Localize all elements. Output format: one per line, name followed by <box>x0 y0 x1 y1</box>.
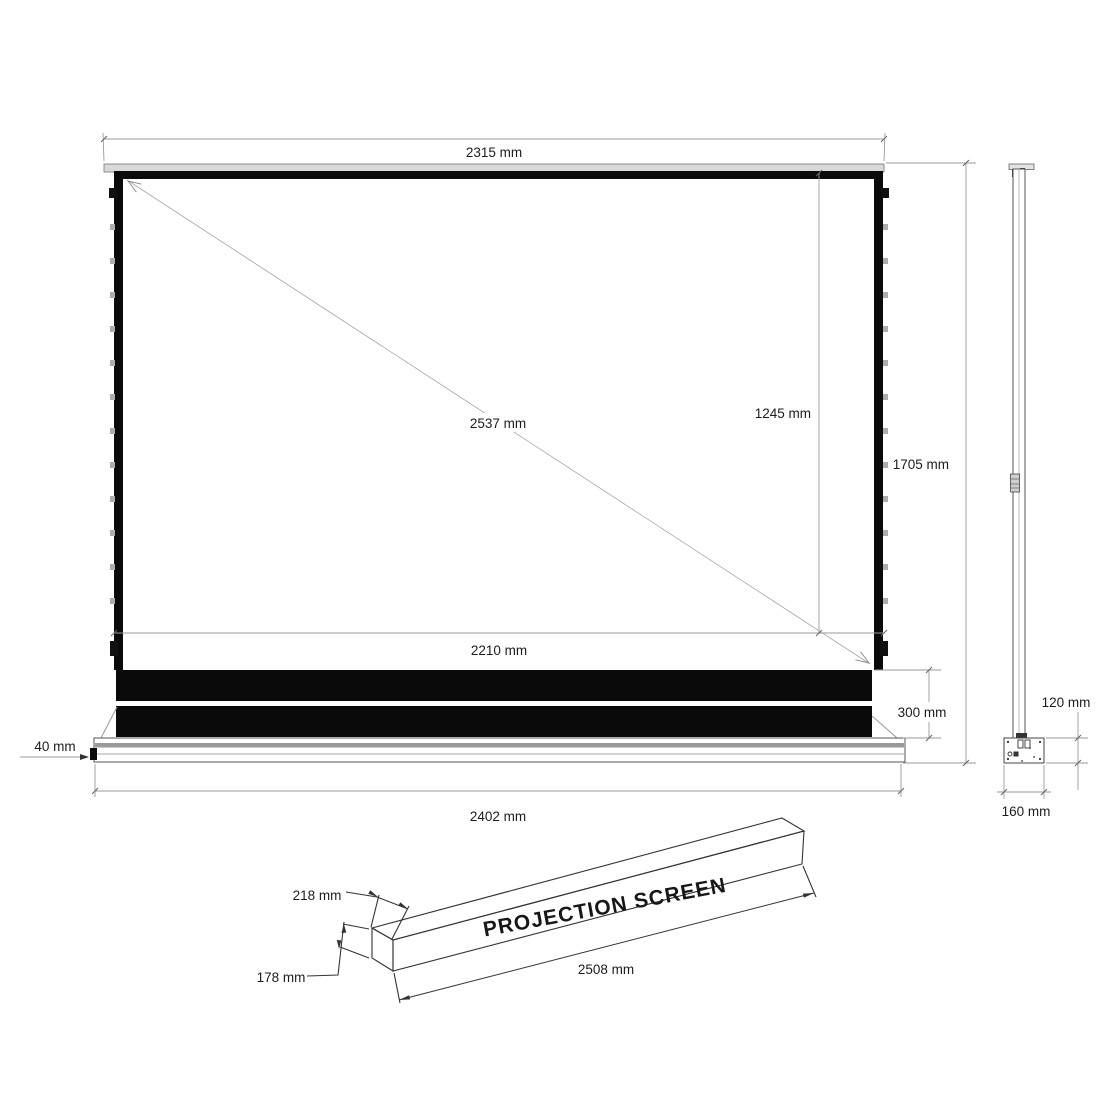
side-pole-foot-joint <box>1016 733 1027 738</box>
case-height-leader <box>307 922 369 976</box>
dim-label-top-width: 2315 mm <box>466 145 522 160</box>
dim-label-case-length: 2508 mm <box>578 962 634 977</box>
case-length-arrow-right <box>803 893 814 898</box>
corner-clip-bottom-right <box>880 641 888 656</box>
dim-label-diagonal: 2537 mm <box>470 416 526 431</box>
side-view <box>1004 164 1044 763</box>
front-view <box>90 164 905 762</box>
case-depth-arrow-b <box>398 902 408 909</box>
dim-label-foot-height: 40 mm <box>34 739 75 754</box>
floor-base <box>94 738 905 762</box>
dim-label-base-width: 2402 mm <box>470 809 526 824</box>
corner-clip-top-left <box>109 188 117 198</box>
case-end-face <box>372 928 393 971</box>
case-3d-view: PROJECTION SCREEN 2508 mm 218 mm 178 mm <box>257 818 816 1003</box>
dim-label-case-depth: 218 mm <box>293 888 342 903</box>
diagonal-arrowhead-top <box>128 181 142 192</box>
side-pole-joint <box>1011 474 1020 492</box>
screen-frame-right <box>874 171 883 670</box>
corner-clip-top-right <box>881 188 889 198</box>
housing-buttress-left <box>101 707 117 738</box>
side-base-button-a <box>1018 740 1023 748</box>
adjustable-foot <box>90 748 97 760</box>
screen-black-drop <box>116 670 872 701</box>
side-base-switch <box>1014 752 1019 757</box>
housing-front <box>116 706 872 737</box>
side-base-box <box>1004 738 1044 763</box>
case-length-extensions <box>394 866 816 1003</box>
dim-label-viewing-height: 1245 mm <box>755 406 811 421</box>
case-height-arrow-top <box>341 924 346 933</box>
dim-label-pole-depth: 120 mm <box>1042 695 1091 710</box>
floor-base-band <box>95 743 904 748</box>
dim-label-viewing-width: 2210 mm <box>471 643 527 658</box>
diagonal-arrowhead-bottom <box>855 652 869 663</box>
dim-label-base-depth: 160 mm <box>1002 804 1051 819</box>
corner-clip-bottom-left <box>110 641 118 656</box>
screen-frame-left <box>114 171 123 670</box>
screen-top-slat <box>104 164 884 172</box>
dim-label-housing-height: 300 mm <box>898 705 947 720</box>
screen-frame-top <box>114 171 883 179</box>
drawing-svg: 2315 mm 2537 mm 1245 mm 1705 mm 2210 mm … <box>0 0 1100 1100</box>
side-base-button-b <box>1025 740 1030 748</box>
case-length-arrow-left <box>399 995 410 1000</box>
technical-drawing-canvas: 2315 mm 2537 mm 1245 mm 1705 mm 2210 mm … <box>0 0 1100 1100</box>
foot-arrowhead <box>80 754 89 760</box>
dim-label-case-height: 178 mm <box>257 970 306 985</box>
case-depth-leader <box>346 892 409 939</box>
dim-label-total-height: 1705 mm <box>893 457 949 472</box>
